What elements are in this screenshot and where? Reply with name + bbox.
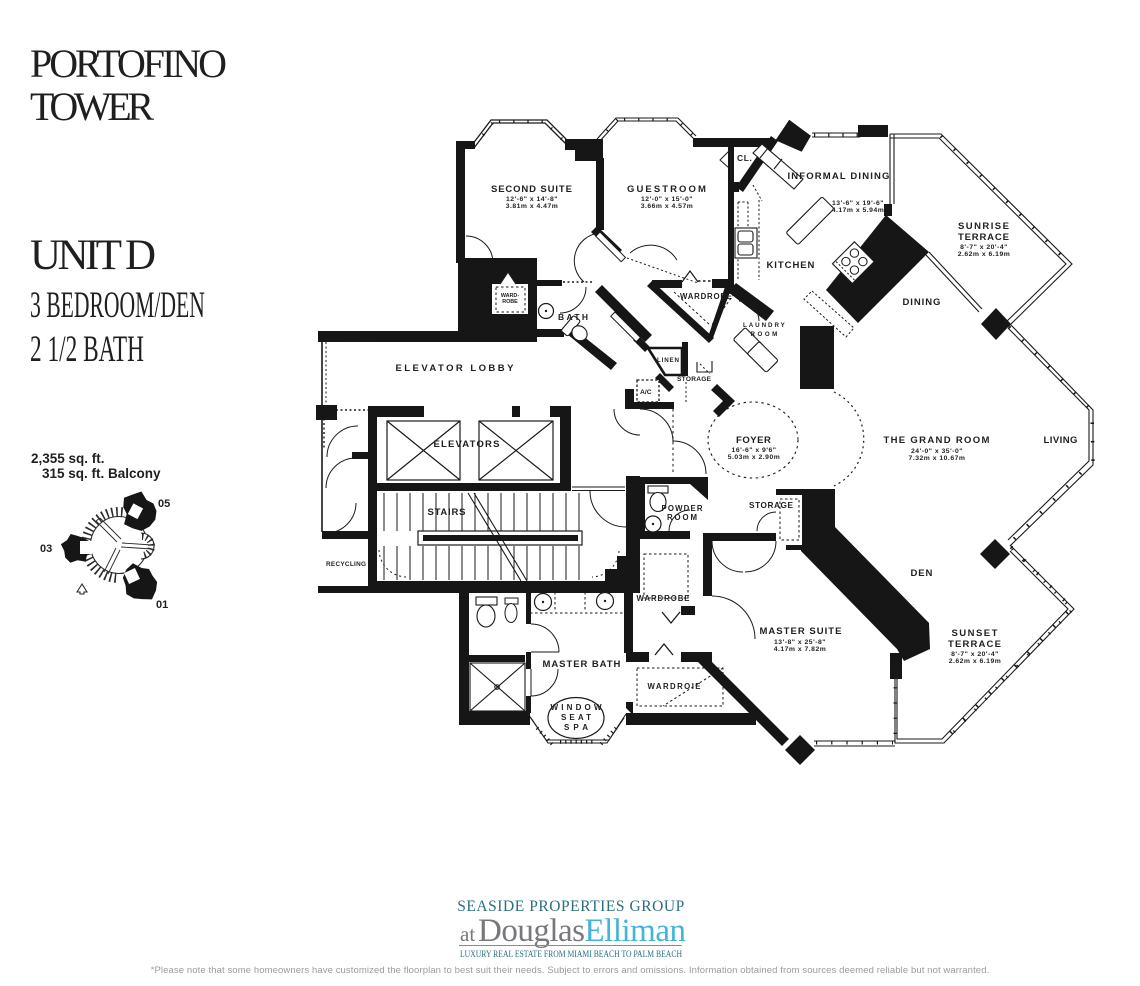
svg-text:13'-6" x 19'-6": 13'-6" x 19'-6" (832, 200, 884, 207)
svg-text:2.62m x 6.19m: 2.62m x 6.19m (958, 251, 1011, 258)
svg-text:*Please note that some homeown: *Please note that some homeowners have c… (151, 965, 990, 976)
svg-text:UNIT D: UNIT D (30, 232, 156, 279)
svg-text:DINING: DINING (903, 297, 942, 308)
svg-text:WARDROBE: WARDROBE (637, 594, 690, 603)
svg-text:DouglasElliman: DouglasElliman (478, 913, 685, 949)
svg-text:SUNRISE: SUNRISE (958, 221, 1010, 232)
svg-text:THE GRAND ROOM: THE GRAND ROOM (884, 435, 991, 446)
svg-text:01: 01 (156, 599, 168, 611)
svg-text:2.62m x 6.19m: 2.62m x 6.19m (949, 658, 1002, 665)
svg-text:ELEVATORS: ELEVATORS (434, 439, 501, 450)
svg-text:4.17m x 5.94m: 4.17m x 5.94m (832, 207, 885, 214)
svg-text:7.32m x 10.67m: 7.32m x 10.67m (909, 455, 966, 462)
svg-text:TOWER: TOWER (30, 84, 154, 129)
svg-text:LUXURY REAL ESTATE FROM MIAMI: LUXURY REAL ESTATE FROM MIAMI BEACH TO P… (460, 950, 682, 960)
svg-text:CL.: CL. (737, 153, 753, 163)
svg-text:DEN: DEN (911, 568, 934, 579)
svg-text:ROBE: ROBE (502, 299, 518, 305)
svg-text:3.66m x 4.57m: 3.66m x 4.57m (641, 203, 694, 210)
svg-text:SECOND SUITE: SECOND SUITE (491, 184, 573, 195)
svg-text:12'-0" x 15'-0": 12'-0" x 15'-0" (641, 196, 693, 203)
svg-text:3 BEDROOM/DEN: 3 BEDROOM/DEN (30, 284, 205, 326)
svg-text:WARDROBE: WARDROBE (680, 292, 732, 301)
svg-text:315 sq. ft. Balcony: 315 sq. ft. Balcony (42, 466, 161, 481)
svg-text:03: 03 (40, 543, 52, 555)
svg-text:LINEN: LINEN (657, 357, 680, 364)
svg-text:TERRACE: TERRACE (948, 639, 1002, 650)
svg-text:INFORMAL DINING: INFORMAL DINING (788, 171, 891, 182)
svg-text:FOYER: FOYER (736, 435, 772, 446)
svg-text:MASTER SUITE: MASTER SUITE (760, 626, 843, 637)
svg-text:GUESTROOM: GUESTROOM (627, 184, 707, 195)
svg-text:STORAGE: STORAGE (749, 501, 794, 510)
svg-text:05: 05 (158, 498, 170, 510)
svg-text:SUNSET: SUNSET (952, 628, 999, 639)
svg-text:16'-6" x 9'6": 16'-6" x 9'6" (732, 447, 777, 454)
svg-text:STORAGE: STORAGE (677, 376, 712, 383)
svg-text:TERRACE: TERRACE (958, 232, 1010, 243)
svg-text:LIVING: LIVING (1044, 435, 1079, 446)
svg-text:POWDER: POWDER (662, 504, 703, 513)
svg-text:12'-6" x 14'-8": 12'-6" x 14'-8" (506, 196, 558, 203)
svg-text:MASTER BATH: MASTER BATH (543, 659, 622, 670)
svg-text:ROOM: ROOM (667, 513, 697, 522)
svg-text:24'-0" x 35'-0": 24'-0" x 35'-0" (911, 448, 963, 455)
svg-text:at: at (460, 922, 475, 946)
svg-text:A/C: A/C (640, 389, 652, 396)
svg-text:8'-7" x 20'-4": 8'-7" x 20'-4" (960, 244, 1008, 251)
svg-text:ROOM: ROOM (751, 331, 778, 338)
svg-text:STAIRS: STAIRS (428, 507, 467, 518)
svg-text:SPA: SPA (564, 723, 588, 732)
svg-text:WARDROIE: WARDROIE (648, 682, 701, 691)
svg-text:PORTOFINO: PORTOFINO (30, 41, 227, 86)
svg-text:5.03m x 2.90m: 5.03m x 2.90m (728, 454, 781, 461)
svg-text:13'-8" x 25'-8": 13'-8" x 25'-8" (774, 639, 826, 646)
svg-text:KITCHEN: KITCHEN (767, 260, 816, 271)
svg-text:2 1/2 BATH: 2 1/2 BATH (30, 327, 144, 369)
svg-text:4.17m x 7.82m: 4.17m x 7.82m (774, 646, 827, 653)
svg-text:RECYCLING: RECYCLING (326, 561, 366, 568)
svg-text:3.81m x 4.47m: 3.81m x 4.47m (506, 203, 559, 210)
svg-text:8'-7" x 20'-4": 8'-7" x 20'-4" (951, 651, 999, 658)
svg-text:2,355 sq. ft.: 2,355 sq. ft. (31, 451, 105, 466)
